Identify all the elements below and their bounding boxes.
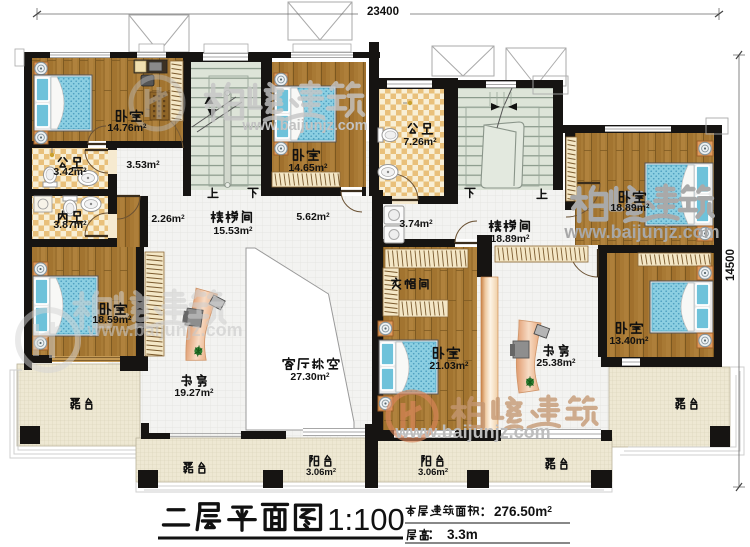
svg-text:14500: 14500 [725,249,737,281]
svg-text:www.baijunjz.com: www.baijunjz.com [394,422,550,442]
svg-text:18.89m2: 18.89m2 [610,202,650,214]
svg-text:19.27m2: 19.27m2 [174,387,214,399]
svg-text:3.06m2: 3.06m2 [306,467,336,478]
svg-text:18.89m2: 18.89m2 [490,233,530,245]
svg-text:www.baijunjz.com: www.baijunjz.com [563,222,719,242]
svg-text:18.59m2: 18.59m2 [92,314,132,326]
svg-text:1:100: 1:100 [327,502,405,537]
svg-text:3.3m: 3.3m [447,527,478,542]
svg-text:25.38m2: 25.38m2 [536,357,576,369]
svg-text:21.03m2: 21.03m2 [429,360,469,372]
svg-text:5.62m2: 5.62m2 [296,211,330,223]
svg-text:15.53m2: 15.53m2 [213,225,253,237]
svg-text:：: ： [427,527,440,542]
svg-text:3.53m2: 3.53m2 [126,159,160,171]
svg-text:27.30m2: 27.30m2 [290,371,330,383]
svg-text:3.06m2: 3.06m2 [418,467,448,478]
svg-text:3.74m2: 3.74m2 [399,218,433,230]
svg-text:3.87m2: 3.87m2 [53,219,87,231]
svg-text:3.42m2: 3.42m2 [53,166,87,178]
svg-text:2.26m2: 2.26m2 [151,213,185,225]
svg-text:23400: 23400 [367,6,399,18]
svg-text:：: ： [479,504,492,519]
svg-text:14.65m2: 14.65m2 [288,162,328,174]
svg-text:www.baijunjz.com: www.baijunjz.com [241,118,367,134]
svg-text:13.40m2: 13.40m2 [609,335,649,347]
svg-text:14.76m2: 14.76m2 [107,122,147,134]
svg-text:276.50m2: 276.50m2 [494,504,552,519]
svg-text:7.26m2: 7.26m2 [403,136,437,148]
